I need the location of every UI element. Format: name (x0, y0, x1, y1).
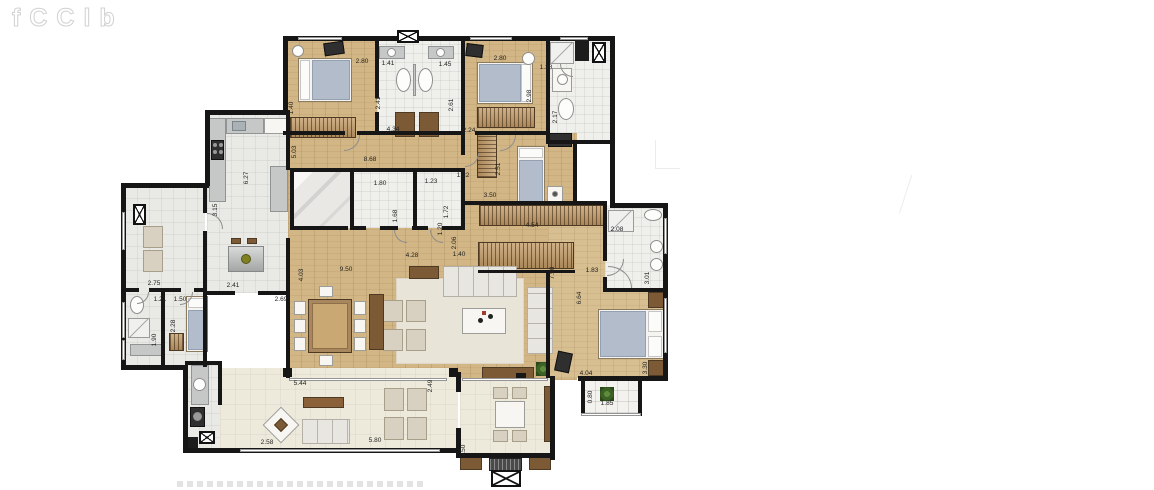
dimension-label: 2.17 (553, 111, 560, 124)
dimension-label: 3.15 (213, 204, 220, 217)
dimension-label: 1.85 (601, 401, 614, 408)
service-chair (143, 250, 163, 272)
dimension-label: 2.24 (463, 128, 476, 135)
window (470, 37, 512, 40)
window (122, 340, 125, 360)
armchair (383, 300, 403, 322)
desk (323, 41, 345, 57)
dining-chair (354, 319, 366, 333)
terrace-armchair (407, 417, 427, 440)
wall (456, 453, 555, 458)
door-x-panel (133, 204, 146, 225)
wall (185, 361, 222, 365)
window (664, 218, 667, 254)
floor-plan: fCClb (0, 0, 1154, 490)
faint-mark (899, 175, 918, 215)
wall (546, 270, 550, 378)
window (581, 413, 641, 416)
dining-chair (294, 319, 306, 333)
wall (550, 376, 555, 460)
wall (203, 291, 207, 367)
wall (573, 140, 577, 205)
decor-item (488, 314, 493, 319)
door-x-panel (397, 30, 419, 43)
dimension-label: 1.45 (439, 62, 452, 69)
window (289, 378, 447, 381)
dimension-label: 2.58 (261, 440, 274, 447)
side-table (292, 45, 304, 57)
bed-mattress (519, 160, 543, 204)
dining-chair (354, 301, 366, 315)
dimension-label: 2.80 (356, 59, 369, 66)
wall (163, 288, 181, 292)
dimension-label: 2.98 (527, 90, 534, 103)
floor-closet (292, 172, 352, 228)
dimension-label: 1.20 (438, 223, 445, 236)
sink-round (650, 258, 663, 271)
dimension-label: 1.90 (152, 334, 159, 347)
wall (203, 291, 235, 295)
wall (461, 201, 607, 205)
dimension-label: 1.40 (289, 102, 296, 115)
dimension-label: 2.49 (428, 380, 435, 393)
floor-bathroom-center-2 (415, 172, 463, 228)
lamp (552, 191, 558, 197)
dimension-label: 1.38 (540, 65, 553, 72)
wardrobe-closet-north (479, 205, 605, 226)
shaft-block (575, 40, 589, 61)
sink (436, 48, 445, 57)
dimension-label: 5.80 (369, 438, 382, 445)
cabinet (460, 457, 482, 470)
wall (203, 183, 207, 213)
dimension-label: 1.40 (453, 252, 466, 259)
wall (290, 168, 465, 172)
dimension-label: 6.64 (577, 292, 584, 305)
dining-table-top (312, 303, 348, 349)
gourmet-chair (493, 387, 508, 399)
burner (213, 143, 217, 147)
terrace-armchair (384, 417, 404, 440)
dimension-label: 9.50 (340, 267, 353, 274)
service-chair (143, 226, 163, 248)
shaft-block (188, 437, 198, 448)
terrace-armchair (407, 388, 427, 411)
console-table (409, 266, 439, 279)
terrace-table (303, 397, 344, 408)
armchair (406, 300, 426, 322)
wall (375, 36, 379, 98)
wall (581, 378, 585, 416)
dimension-label: 4.34 (387, 127, 400, 134)
bed-pillow (648, 311, 662, 332)
burner (219, 150, 223, 154)
wall (610, 203, 668, 208)
dimension-label: 2.75 (148, 281, 161, 288)
watermark-letter: b (99, 4, 123, 32)
dimension-label: 1.41 (382, 61, 395, 68)
wardrobe-closet-south (478, 242, 574, 269)
stool (247, 238, 257, 244)
window (664, 298, 667, 353)
sink (558, 98, 574, 120)
dresser (169, 333, 184, 351)
stool (231, 238, 241, 244)
wall (203, 231, 207, 293)
decor-item (482, 311, 486, 315)
wall (546, 36, 550, 142)
dimension-label: 2.69 (275, 297, 288, 304)
burner (213, 150, 217, 154)
wall (461, 133, 465, 155)
window (122, 302, 125, 338)
window (462, 378, 548, 381)
dimension-label: 8.68 (364, 157, 377, 164)
dimension-label: 5.44 (294, 381, 307, 388)
fruit-bowl (241, 254, 251, 264)
bed-pillow (648, 336, 662, 357)
wall (461, 36, 465, 135)
terrace-armchair (384, 388, 404, 411)
window (240, 449, 440, 452)
side-table (522, 52, 535, 65)
wall (283, 368, 292, 377)
wall (352, 226, 366, 230)
door-x-panel (491, 470, 521, 487)
gourmet-chair (512, 387, 527, 399)
dimension-label: 4.54 (526, 223, 539, 230)
kitchen-counter (209, 118, 226, 202)
armchair (406, 329, 426, 351)
gourmet-table (495, 401, 525, 428)
burner (219, 143, 223, 147)
dimension-label: 2.51 (496, 163, 503, 176)
buffet-sideboard (369, 294, 384, 350)
sink (387, 48, 396, 57)
wall (290, 168, 294, 230)
wall (412, 226, 428, 230)
washer-door (193, 412, 202, 421)
dimension-label: 2.28 (171, 320, 178, 333)
bed-mattress (600, 311, 646, 357)
wall (638, 378, 642, 416)
cabinet (529, 457, 551, 470)
dimension-label: 4.04 (580, 371, 593, 378)
sink-round (650, 240, 663, 253)
dimension-label: 1.68 (393, 210, 400, 223)
dimension-label: 4.28 (406, 253, 419, 260)
wardrobe-bedroom-2 (477, 107, 535, 128)
dimension-label: 1.50 (174, 297, 187, 304)
dimension-label: 2.41 (376, 97, 383, 110)
shower-stall (128, 318, 150, 338)
dimension-label: 2.41 (227, 283, 240, 290)
bed-pillow (519, 148, 543, 158)
dimension-label: 3.50 (484, 193, 497, 200)
faded-caption (177, 481, 425, 487)
wall (350, 168, 354, 230)
wall (149, 288, 163, 292)
dimension-label: 1.22 (457, 173, 470, 180)
watermark-letter: f (12, 4, 29, 32)
toilet (418, 68, 433, 92)
window (122, 212, 125, 250)
bed-mattress (312, 60, 350, 100)
dimension-label: 1.21 (154, 297, 167, 304)
wall (283, 131, 345, 135)
wall (456, 372, 461, 392)
toilet (644, 209, 662, 221)
wall (205, 110, 287, 115)
dimension-label: 2.80 (494, 56, 507, 63)
partition (413, 64, 416, 96)
dimension-label: 2.61 (449, 99, 456, 112)
wall (286, 110, 290, 170)
dining-chair (294, 301, 306, 315)
window (298, 37, 342, 40)
dimension-label: 3.50 (461, 445, 468, 458)
wall (442, 226, 465, 230)
faint-mark (655, 140, 680, 169)
dimension-label: 2.08 (611, 227, 624, 234)
kitchen-sink (232, 121, 246, 131)
armchair (383, 329, 403, 351)
dining-chair (294, 337, 306, 351)
watermark-letter: C (56, 4, 83, 32)
dimension-label: 6.27 (244, 172, 251, 185)
dining-chair (319, 355, 333, 366)
wall (218, 361, 222, 405)
toilet (396, 68, 411, 92)
wall (357, 131, 461, 135)
kitchen-peninsula (270, 166, 288, 212)
dimension-label: 3.01 (645, 272, 652, 285)
dimension-label: 1.72 (444, 206, 451, 219)
door-x-panel (199, 431, 215, 444)
wall (205, 110, 210, 186)
wall (610, 36, 615, 208)
shower-stall (550, 42, 574, 64)
desk (465, 43, 483, 58)
dining-chair (319, 286, 333, 297)
bed-mattress (479, 64, 521, 102)
dimension-label: 5.03 (292, 146, 299, 159)
dining-chair (354, 337, 366, 351)
gourmet-chair (493, 430, 508, 442)
dimension-label: 1.83 (586, 268, 599, 275)
dimension-label: 4.03 (299, 269, 306, 282)
wall (603, 288, 665, 292)
watermark-logo: fCClb (12, 4, 124, 33)
decor-item (478, 318, 483, 323)
wall (286, 238, 290, 378)
dimension-label: 3.30 (643, 362, 650, 375)
dimension-label: 2.06 (452, 237, 459, 250)
watermark-letter: l (83, 4, 99, 32)
dimension-label: 1.80 (374, 181, 387, 188)
wall (290, 226, 348, 230)
wall (546, 140, 610, 144)
dimension-label: 1.23 (425, 179, 438, 186)
laundry-sink (193, 378, 206, 391)
terrace-sofa (302, 419, 350, 444)
wall (258, 291, 288, 295)
watermark-letter: C (29, 4, 56, 32)
wall (121, 183, 209, 188)
dimension-label: 0.80 (588, 391, 595, 404)
gourmet-chair (512, 430, 527, 442)
wall (121, 365, 187, 370)
dimension-label: 7.50 (550, 267, 557, 280)
wall (603, 203, 607, 261)
door-x-panel (592, 42, 606, 63)
wall (413, 168, 417, 230)
bed-pillow (300, 60, 310, 100)
wall (478, 270, 575, 273)
